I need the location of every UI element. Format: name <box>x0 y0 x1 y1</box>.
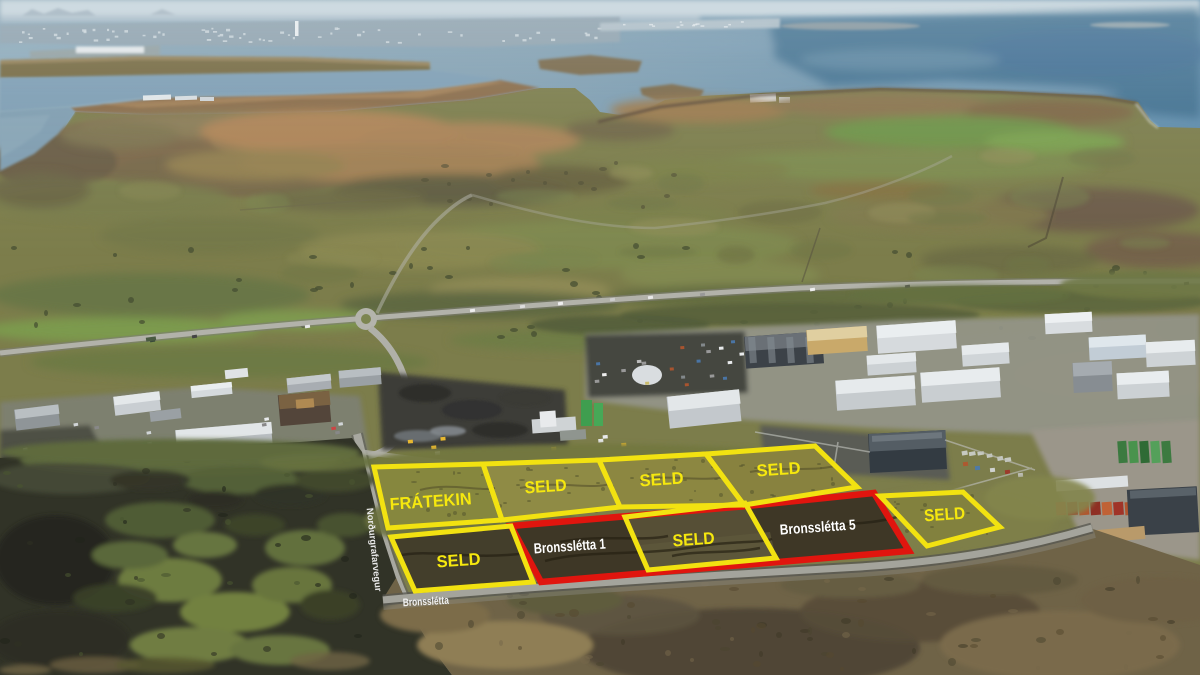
svg-text:SELD: SELD <box>672 529 715 551</box>
svg-text:Bronsslétta: Bronsslétta <box>403 595 450 609</box>
svg-text:SELD: SELD <box>524 476 567 498</box>
svg-text:SELD: SELD <box>436 550 481 572</box>
svg-text:SELD: SELD <box>756 459 801 481</box>
svg-text:SELD: SELD <box>924 504 966 526</box>
svg-text:SELD: SELD <box>639 469 684 491</box>
